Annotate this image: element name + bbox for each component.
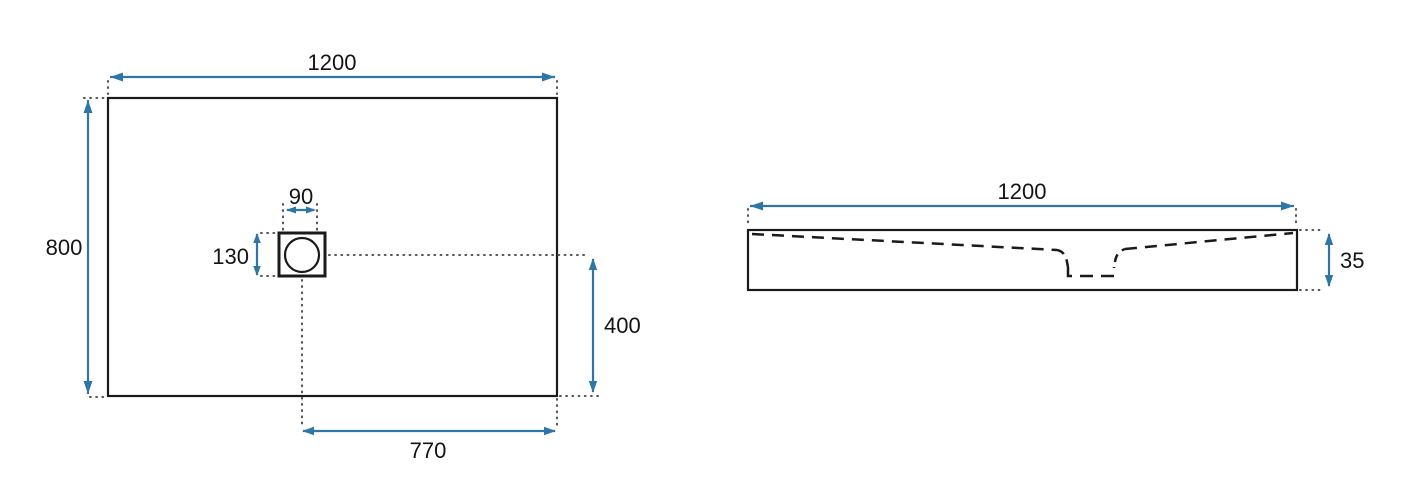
drawing-svg: 1200 800 90 130 400 770 xyxy=(0,0,1410,498)
arrowhead-icon xyxy=(1325,233,1333,245)
arrowhead-icon xyxy=(1325,275,1333,287)
side-view: 1200 35 xyxy=(748,179,1364,290)
arrowhead-icon xyxy=(750,202,763,211)
arrowhead-icon xyxy=(253,266,261,276)
technical-drawing: 1200 800 90 130 400 770 xyxy=(0,0,1410,498)
drain-offset-bottom-label: 400 xyxy=(604,313,641,338)
arrowhead-icon xyxy=(302,427,314,435)
arrowhead-icon xyxy=(84,100,93,113)
slope-dashed-right xyxy=(1125,233,1293,249)
tray-outline-side xyxy=(748,230,1297,290)
arrowhead-icon xyxy=(1281,202,1294,211)
drain-recess-right-curve xyxy=(1115,249,1125,262)
drain-height-label: 130 xyxy=(212,244,249,269)
top-view: 1200 800 90 130 400 770 xyxy=(46,50,641,463)
drain-offset-right-label: 770 xyxy=(410,438,447,463)
tray-outline-top xyxy=(108,98,557,396)
arrowhead-icon xyxy=(253,233,261,243)
side-width-label: 1200 xyxy=(998,179,1047,204)
drain-circle xyxy=(285,238,319,272)
slope-dashed-left xyxy=(752,234,1057,250)
arrowhead-icon xyxy=(542,73,555,82)
drain-recess-bottom xyxy=(1068,267,1114,276)
top-depth-label: 800 xyxy=(46,235,83,260)
drain-recess-left-curve xyxy=(1057,250,1068,267)
side-height-label: 35 xyxy=(1340,248,1364,273)
arrowhead-icon xyxy=(544,427,556,435)
arrowhead-icon xyxy=(589,258,597,270)
arrowhead-icon xyxy=(589,381,597,393)
arrowhead-icon xyxy=(110,73,123,82)
arrowhead-icon xyxy=(84,381,93,394)
top-width-label: 1200 xyxy=(308,50,357,75)
drain-width-label: 90 xyxy=(289,184,313,209)
